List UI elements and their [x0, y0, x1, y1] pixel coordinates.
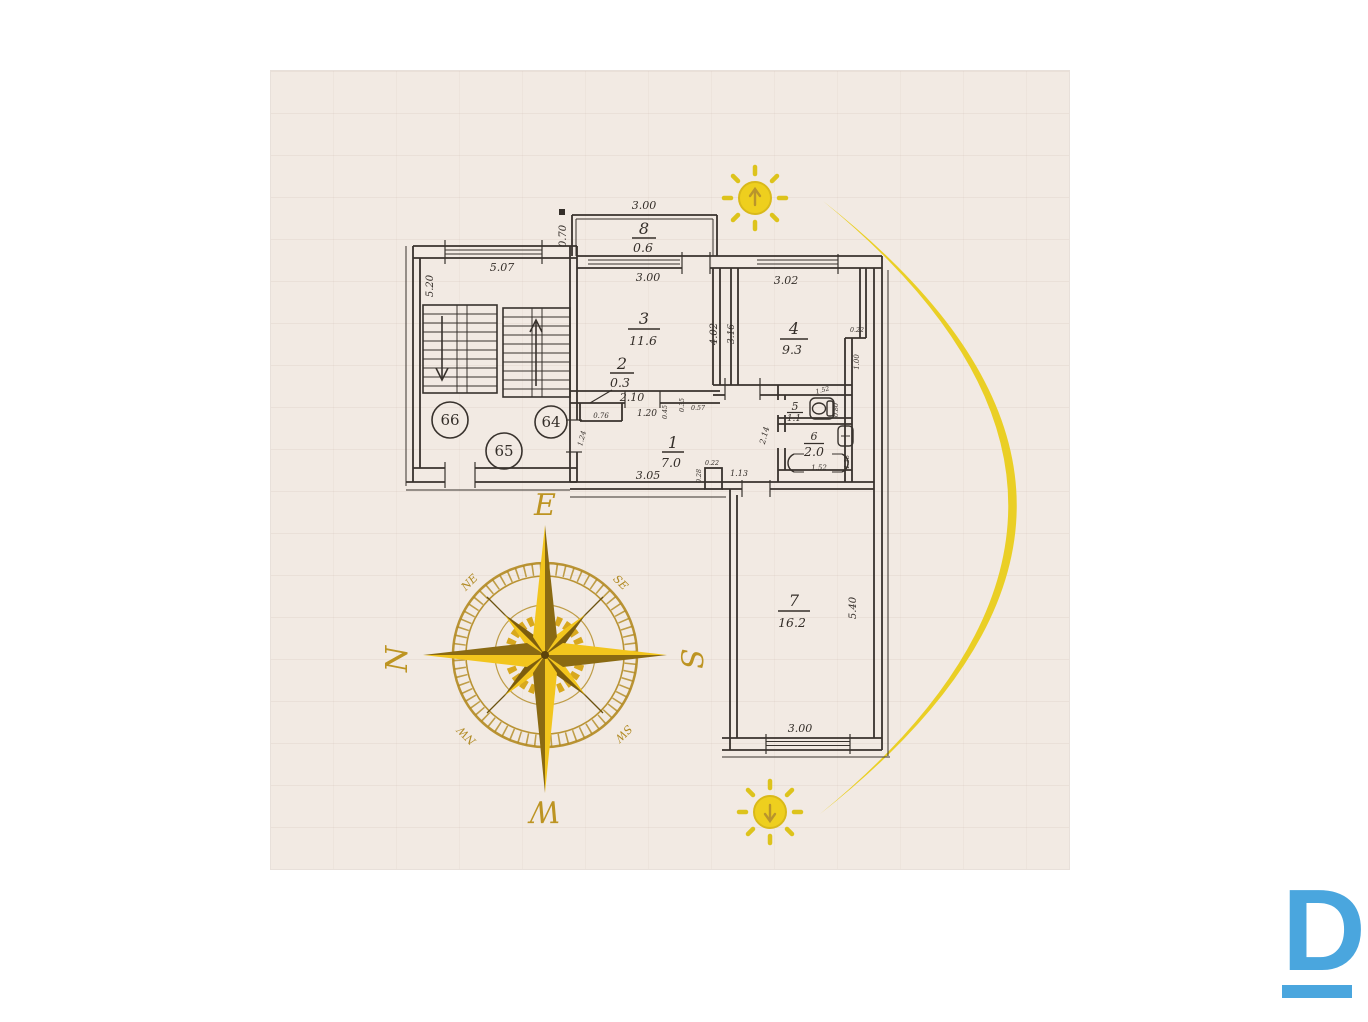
toilet-icon	[810, 398, 834, 419]
dim-hall-bottom: 3.05	[636, 469, 661, 482]
room-area: 16.2	[778, 615, 806, 630]
room-number: 2	[616, 354, 627, 373]
dim-hall-top-b: 0.45	[662, 405, 669, 419]
room-label-5: 5 1.1	[787, 400, 803, 424]
dim-hall-top-a: 1.20	[637, 409, 657, 419]
stair-down-arrow-icon	[436, 316, 448, 380]
walls	[406, 209, 890, 757]
svg-text:64: 64	[541, 413, 560, 431]
dim-stair-side: 5.20	[425, 274, 436, 297]
dim-closet-inner: 0.76	[593, 412, 609, 420]
dim-room7-side: 5.40	[848, 596, 859, 619]
room-label-3: 3 11.6	[628, 309, 660, 348]
compass-rose-icon: E N S W NE SE SW NW	[380, 488, 708, 828]
staircase	[423, 305, 570, 397]
floor-plan-photo: 1 7.0 2 0.3 3 11.6 4 9.3 5 1.1 6 2.0 7 1…	[270, 70, 1070, 870]
room-label-8: 8 0.6	[632, 219, 656, 255]
room-label-4: 4 9.3	[780, 319, 808, 357]
sun-path-arc	[820, 201, 1017, 814]
svg-text:66: 66	[440, 411, 459, 429]
dim-door-width: 1.13	[730, 469, 748, 478]
dim-hall-wall-b: 0.57	[691, 405, 705, 412]
dim-stair-top: 5.07	[490, 261, 515, 274]
compass-label-ne: NE	[458, 572, 480, 594]
apartment-number-64: 64	[535, 406, 567, 438]
room-area: 0.6	[633, 240, 653, 255]
room-number: 3	[639, 309, 649, 328]
compass-label-sw: SW	[611, 722, 635, 746]
dim-wc-fixture: 0.80	[833, 403, 840, 417]
dim-shaft-right: 3.16	[727, 324, 737, 344]
room-number: 7	[789, 591, 800, 610]
dim-bath-bottom: 1.52	[811, 464, 827, 472]
compass-label-s: S	[673, 649, 708, 670]
room-label-1: 1 7.0	[661, 433, 684, 470]
room-number: 5	[792, 400, 799, 413]
room-area: 11.6	[629, 333, 657, 348]
dim-closet-top: 2.10	[619, 391, 645, 404]
room-area: 2.0	[803, 444, 824, 459]
dim-room7-bottom: 3.00	[788, 722, 813, 735]
dim-hall-wall-a: 0.35	[679, 398, 686, 412]
dim-door-notch-a: 0.22	[705, 460, 719, 467]
floor-plan-svg: 1 7.0 2 0.3 3 11.6 4 9.3 5 1.1 6 2.0 7 1…	[270, 70, 1070, 870]
room-number: 6	[811, 430, 818, 443]
room-number: 4	[788, 319, 799, 338]
room-number: 1	[668, 433, 678, 452]
room-area: 9.3	[782, 342, 802, 357]
room-label-7: 7 16.2	[778, 591, 810, 630]
svg-text:65: 65	[494, 442, 513, 460]
compass-label-n: N	[380, 644, 415, 673]
compass-label-se: SE	[610, 572, 630, 592]
apartment-number-65: 65	[486, 433, 522, 469]
dim-balcony-side: 0.70	[558, 224, 569, 247]
dim-shaft-left: 4.02	[709, 323, 720, 346]
dim-room3-top: 3.00	[636, 271, 661, 284]
dim-door-notch-b: 0.28	[696, 469, 703, 483]
dim-balcony-top: 3.00	[632, 199, 657, 212]
dim-room4-top: 3.02	[774, 274, 799, 287]
room-number: 8	[639, 219, 649, 238]
dim-corridor-side: 2.14	[758, 426, 772, 447]
dim-room4-notch: 0.22	[850, 327, 864, 334]
compass-label-w: W	[527, 793, 560, 828]
dim-hall-left: 1.24	[576, 430, 588, 447]
apartment-number-66: 66	[432, 402, 468, 438]
room-area: 0.3	[610, 375, 630, 390]
dim-bath-side: 1.38	[844, 455, 851, 469]
sunset-sun-icon	[739, 781, 801, 843]
room-area: 7.0	[661, 455, 681, 470]
room-area: 1.1	[787, 414, 801, 424]
compass-label-e: E	[533, 488, 556, 523]
compass-label-nw: NW	[453, 722, 479, 748]
brand-logo-letter: D	[1282, 884, 1358, 976]
room-label-6: 6 2.0	[803, 430, 824, 459]
sunrise-sun-icon	[724, 167, 786, 229]
dim-room4-duct: 1.00	[853, 354, 861, 370]
brand-logo: D	[1282, 884, 1358, 998]
